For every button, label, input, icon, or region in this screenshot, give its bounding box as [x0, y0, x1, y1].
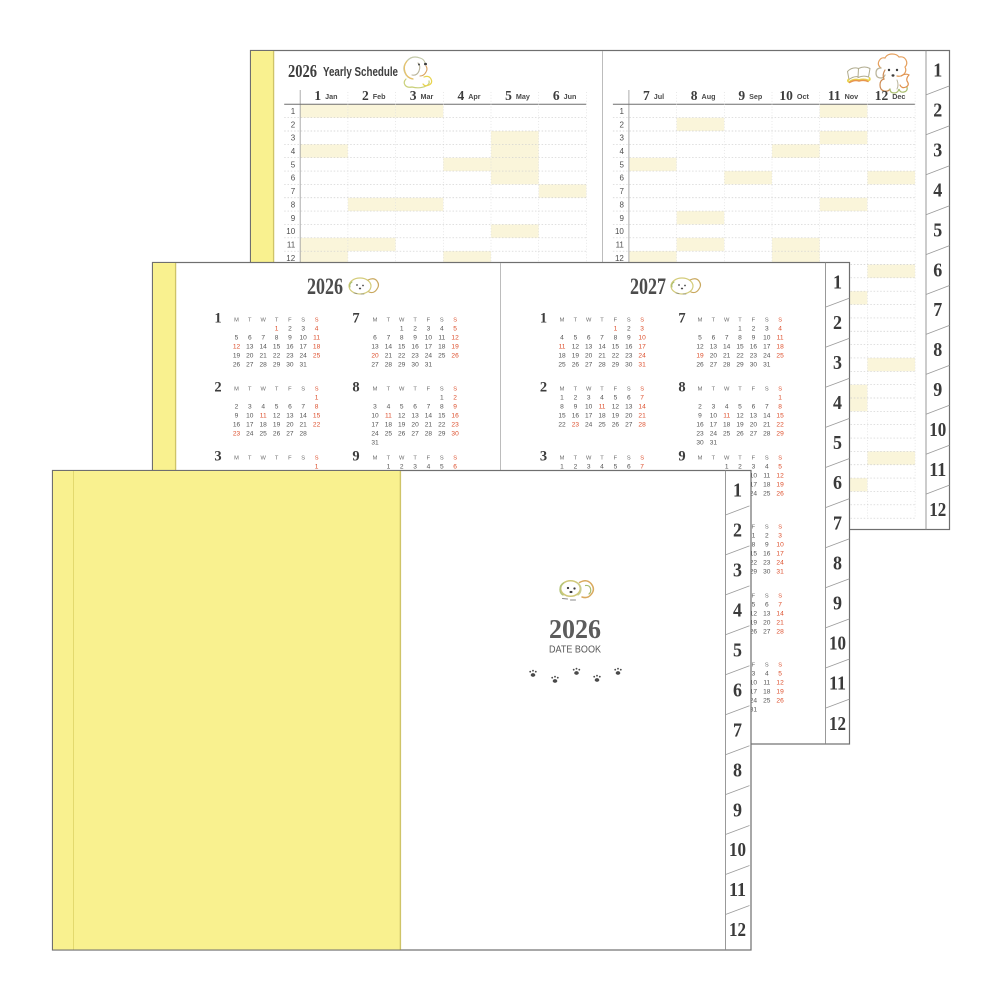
- svg-text:28: 28: [638, 422, 646, 429]
- svg-text:10: 10: [763, 335, 771, 342]
- svg-text:25: 25: [313, 353, 321, 360]
- svg-text:T: T: [413, 387, 417, 393]
- svg-text:T: T: [275, 456, 279, 462]
- svg-text:10: 10: [300, 335, 308, 342]
- svg-text:8: 8: [733, 759, 742, 781]
- svg-text:Dec: Dec: [892, 92, 905, 101]
- svg-text:29: 29: [776, 431, 784, 438]
- svg-text:23: 23: [750, 353, 758, 360]
- svg-text:22: 22: [736, 353, 744, 360]
- svg-text:26: 26: [233, 362, 241, 369]
- svg-text:3: 3: [214, 449, 221, 465]
- svg-text:S: S: [778, 594, 782, 600]
- svg-text:11: 11: [385, 413, 392, 420]
- svg-text:24: 24: [585, 422, 593, 429]
- svg-text:21: 21: [776, 620, 784, 627]
- svg-text:24: 24: [638, 353, 646, 360]
- svg-text:S: S: [315, 387, 319, 393]
- svg-text:17: 17: [246, 422, 254, 429]
- svg-text:9: 9: [752, 335, 756, 342]
- svg-text:30: 30: [451, 431, 459, 438]
- svg-text:2: 2: [933, 100, 942, 122]
- svg-text:6: 6: [553, 88, 560, 103]
- svg-text:2: 2: [235, 404, 239, 411]
- svg-text:8: 8: [291, 200, 296, 209]
- svg-text:11: 11: [828, 88, 841, 103]
- svg-text:25: 25: [598, 422, 606, 429]
- svg-text:11: 11: [559, 344, 566, 351]
- svg-text:12: 12: [398, 413, 406, 420]
- svg-text:9: 9: [574, 404, 578, 411]
- svg-text:10: 10: [779, 88, 793, 103]
- svg-text:17: 17: [638, 344, 646, 351]
- svg-text:27: 27: [286, 431, 294, 438]
- svg-text:S: S: [315, 318, 319, 324]
- svg-text:M: M: [234, 387, 239, 393]
- svg-text:8: 8: [352, 380, 359, 396]
- svg-text:2: 2: [574, 464, 578, 471]
- svg-text:3: 3: [291, 134, 296, 143]
- svg-text:8: 8: [738, 335, 742, 342]
- svg-text:F: F: [427, 387, 431, 393]
- svg-text:1: 1: [738, 326, 742, 333]
- svg-text:21: 21: [763, 422, 771, 429]
- svg-text:19: 19: [696, 353, 704, 360]
- svg-text:2: 2: [627, 326, 631, 333]
- svg-text:Jun: Jun: [564, 92, 577, 101]
- svg-text:S: S: [440, 456, 444, 462]
- svg-text:May: May: [516, 92, 530, 101]
- svg-text:9: 9: [453, 404, 457, 411]
- svg-text:Mar: Mar: [421, 92, 434, 101]
- svg-text:F: F: [614, 456, 618, 462]
- svg-text:8: 8: [440, 404, 444, 411]
- svg-text:2: 2: [288, 326, 292, 333]
- svg-text:12: 12: [729, 919, 746, 941]
- svg-text:F: F: [752, 318, 756, 324]
- svg-text:7: 7: [725, 335, 729, 342]
- svg-text:14: 14: [260, 344, 268, 351]
- svg-text:M: M: [373, 387, 378, 393]
- svg-text:3: 3: [733, 560, 742, 582]
- svg-text:1: 1: [275, 326, 279, 333]
- svg-text:25: 25: [763, 491, 771, 498]
- svg-text:F: F: [752, 594, 756, 600]
- svg-text:28: 28: [425, 431, 433, 438]
- svg-text:M: M: [234, 318, 239, 324]
- svg-text:S: S: [301, 387, 305, 393]
- svg-text:7: 7: [352, 311, 359, 327]
- svg-text:22: 22: [398, 353, 406, 360]
- svg-text:30: 30: [696, 440, 704, 447]
- svg-text:8: 8: [619, 200, 624, 209]
- svg-text:13: 13: [585, 344, 593, 351]
- svg-text:10: 10: [929, 419, 946, 441]
- svg-text:6: 6: [833, 472, 842, 494]
- svg-text:8: 8: [691, 88, 698, 103]
- svg-text:S: S: [453, 456, 457, 462]
- svg-text:8: 8: [933, 339, 942, 361]
- svg-text:6: 6: [712, 335, 716, 342]
- svg-text:F: F: [614, 318, 618, 324]
- svg-text:13: 13: [371, 344, 379, 351]
- svg-text:2: 2: [738, 464, 742, 471]
- svg-text:S: S: [301, 318, 305, 324]
- svg-text:Oct: Oct: [797, 92, 810, 101]
- svg-text:19: 19: [273, 422, 281, 429]
- svg-text:7: 7: [678, 311, 685, 327]
- svg-text:S: S: [640, 318, 644, 324]
- svg-text:3: 3: [933, 140, 942, 162]
- svg-text:F: F: [614, 387, 618, 393]
- svg-text:3: 3: [301, 326, 305, 333]
- svg-text:20: 20: [585, 353, 593, 360]
- svg-text:27: 27: [411, 431, 419, 438]
- svg-text:2: 2: [619, 120, 624, 129]
- svg-text:13: 13: [246, 344, 254, 351]
- svg-text:4: 4: [291, 147, 296, 156]
- svg-text:9: 9: [698, 413, 702, 420]
- svg-text:31: 31: [300, 362, 308, 369]
- svg-text:23: 23: [411, 353, 419, 360]
- svg-text:M: M: [560, 456, 565, 462]
- svg-text:25: 25: [260, 431, 268, 438]
- svg-text:7: 7: [301, 404, 305, 411]
- svg-text:14: 14: [300, 413, 308, 420]
- svg-text:15: 15: [558, 413, 566, 420]
- svg-text:16: 16: [233, 422, 241, 429]
- svg-text:T: T: [600, 387, 604, 393]
- svg-text:2: 2: [291, 120, 296, 129]
- svg-text:24: 24: [246, 431, 254, 438]
- svg-text:W: W: [724, 318, 730, 324]
- svg-text:1: 1: [540, 311, 547, 327]
- svg-text:2: 2: [540, 380, 547, 396]
- svg-text:S: S: [627, 318, 631, 324]
- svg-text:23: 23: [286, 353, 294, 360]
- svg-text:20: 20: [411, 422, 419, 429]
- svg-text:F: F: [288, 387, 292, 393]
- svg-text:13: 13: [625, 404, 633, 411]
- svg-text:31: 31: [776, 569, 784, 576]
- svg-text:5: 5: [453, 326, 457, 333]
- svg-text:T: T: [413, 456, 417, 462]
- svg-text:F: F: [752, 456, 756, 462]
- svg-text:23: 23: [696, 431, 704, 438]
- svg-text:14: 14: [385, 344, 393, 351]
- svg-text:4: 4: [933, 180, 942, 202]
- svg-text:23: 23: [451, 422, 459, 429]
- svg-text:F: F: [288, 456, 292, 462]
- svg-text:5: 5: [235, 335, 239, 342]
- svg-text:21: 21: [723, 353, 731, 360]
- svg-text:7: 7: [261, 335, 265, 342]
- svg-text:8: 8: [275, 335, 279, 342]
- svg-text:5: 5: [400, 404, 404, 411]
- svg-text:5: 5: [614, 464, 618, 471]
- svg-text:31: 31: [638, 362, 646, 369]
- svg-text:M: M: [373, 318, 378, 324]
- svg-text:11: 11: [438, 335, 445, 342]
- svg-text:S: S: [778, 456, 782, 462]
- svg-text:7: 7: [291, 187, 296, 196]
- svg-text:9: 9: [678, 449, 685, 465]
- svg-text:25: 25: [385, 431, 393, 438]
- svg-text:21: 21: [598, 353, 606, 360]
- svg-text:4: 4: [778, 326, 782, 333]
- svg-text:13: 13: [750, 413, 758, 420]
- svg-text:16: 16: [286, 344, 294, 351]
- svg-text:T: T: [712, 456, 716, 462]
- svg-text:1: 1: [560, 464, 564, 471]
- svg-text:17: 17: [425, 344, 433, 351]
- svg-text:11: 11: [763, 473, 770, 480]
- svg-text:T: T: [275, 387, 279, 393]
- svg-text:12: 12: [615, 254, 624, 263]
- svg-text:4: 4: [315, 326, 319, 333]
- svg-text:1: 1: [315, 395, 319, 402]
- svg-text:4: 4: [440, 326, 444, 333]
- svg-text:12: 12: [612, 404, 620, 411]
- svg-text:4: 4: [457, 88, 464, 103]
- svg-text:31: 31: [371, 440, 379, 447]
- svg-text:13: 13: [411, 413, 419, 420]
- svg-text:26: 26: [572, 362, 580, 369]
- svg-text:5: 5: [933, 219, 942, 241]
- svg-text:6: 6: [453, 464, 457, 471]
- svg-text:15: 15: [273, 344, 281, 351]
- svg-text:17: 17: [776, 551, 784, 558]
- svg-text:4: 4: [261, 404, 265, 411]
- svg-text:Yearly Schedule: Yearly Schedule: [323, 65, 398, 79]
- svg-text:F: F: [752, 387, 756, 393]
- svg-text:21: 21: [260, 353, 268, 360]
- svg-text:8: 8: [560, 404, 564, 411]
- svg-text:7: 7: [933, 299, 942, 321]
- svg-text:10: 10: [286, 227, 295, 236]
- svg-text:31: 31: [425, 362, 433, 369]
- svg-text:10: 10: [371, 413, 379, 420]
- svg-text:7: 7: [600, 335, 604, 342]
- svg-text:11: 11: [777, 335, 784, 342]
- svg-text:12: 12: [776, 680, 784, 687]
- svg-text:18: 18: [438, 344, 446, 351]
- svg-text:6: 6: [933, 259, 942, 281]
- svg-text:20: 20: [625, 413, 633, 420]
- svg-text:3: 3: [752, 671, 756, 678]
- svg-text:22: 22: [273, 353, 281, 360]
- svg-text:T: T: [387, 456, 391, 462]
- svg-text:29: 29: [612, 362, 620, 369]
- svg-text:W: W: [261, 387, 267, 393]
- svg-text:S: S: [640, 387, 644, 393]
- svg-text:F: F: [288, 318, 292, 324]
- svg-text:7: 7: [387, 335, 391, 342]
- svg-text:11: 11: [260, 413, 267, 420]
- svg-text:1: 1: [387, 464, 391, 471]
- svg-text:T: T: [574, 387, 578, 393]
- svg-text:5: 5: [619, 160, 624, 169]
- svg-text:18: 18: [598, 413, 606, 420]
- svg-text:28: 28: [763, 431, 771, 438]
- svg-text:6: 6: [291, 174, 296, 183]
- svg-text:29: 29: [273, 362, 281, 369]
- svg-text:25: 25: [776, 353, 784, 360]
- svg-text:T: T: [248, 387, 252, 393]
- svg-text:1: 1: [440, 395, 444, 402]
- svg-text:S: S: [778, 318, 782, 324]
- svg-text:5: 5: [733, 640, 742, 662]
- svg-text:12: 12: [696, 344, 704, 351]
- svg-text:28: 28: [776, 629, 784, 636]
- svg-text:13: 13: [286, 413, 294, 420]
- svg-text:6: 6: [627, 464, 631, 471]
- svg-text:2026: 2026: [288, 61, 317, 81]
- svg-text:11: 11: [599, 404, 606, 411]
- svg-text:S: S: [778, 525, 782, 531]
- svg-text:22: 22: [776, 422, 784, 429]
- svg-text:19: 19: [233, 353, 241, 360]
- svg-text:DATE BOOK: DATE BOOK: [549, 645, 601, 656]
- svg-text:6: 6: [288, 404, 292, 411]
- svg-text:9: 9: [288, 335, 292, 342]
- svg-text:M: M: [234, 456, 239, 462]
- svg-text:T: T: [712, 387, 716, 393]
- svg-text:11: 11: [287, 241, 296, 250]
- svg-text:T: T: [738, 387, 742, 393]
- svg-text:12: 12: [829, 713, 846, 735]
- svg-text:9: 9: [619, 214, 624, 223]
- svg-text:25: 25: [763, 698, 771, 705]
- svg-text:2026: 2026: [307, 274, 343, 299]
- svg-text:M: M: [698, 318, 703, 324]
- svg-text:16: 16: [750, 344, 758, 351]
- svg-text:28: 28: [723, 362, 731, 369]
- svg-text:4: 4: [600, 464, 604, 471]
- svg-text:29: 29: [736, 362, 744, 369]
- svg-text:7: 7: [833, 512, 842, 534]
- svg-text:19: 19: [451, 344, 459, 351]
- svg-text:12: 12: [736, 413, 744, 420]
- svg-text:28: 28: [598, 362, 606, 369]
- svg-text:26: 26: [776, 698, 784, 705]
- svg-text:12: 12: [776, 473, 784, 480]
- svg-text:6: 6: [413, 404, 417, 411]
- svg-text:T: T: [738, 456, 742, 462]
- svg-text:31: 31: [710, 440, 718, 447]
- svg-text:15: 15: [313, 413, 321, 420]
- svg-text:2027: 2027: [630, 274, 666, 299]
- svg-text:26: 26: [398, 431, 406, 438]
- svg-text:20: 20: [371, 353, 379, 360]
- svg-text:4: 4: [833, 392, 842, 414]
- svg-text:18: 18: [763, 689, 771, 696]
- svg-text:16: 16: [763, 551, 771, 558]
- svg-text:9: 9: [413, 335, 417, 342]
- svg-text:S: S: [778, 387, 782, 393]
- svg-text:2: 2: [413, 326, 417, 333]
- svg-text:13: 13: [710, 344, 718, 351]
- svg-text:3: 3: [587, 464, 591, 471]
- svg-text:23: 23: [572, 422, 580, 429]
- svg-text:14: 14: [763, 413, 771, 420]
- svg-text:9: 9: [933, 379, 942, 401]
- svg-text:S: S: [453, 318, 457, 324]
- svg-text:24: 24: [300, 353, 308, 360]
- svg-text:17: 17: [371, 422, 379, 429]
- svg-text:26: 26: [273, 431, 281, 438]
- svg-text:Jan: Jan: [325, 92, 337, 101]
- svg-text:4: 4: [733, 600, 742, 622]
- svg-text:T: T: [600, 318, 604, 324]
- svg-text:25: 25: [558, 362, 566, 369]
- svg-text:11: 11: [929, 459, 946, 481]
- svg-text:S: S: [778, 663, 782, 669]
- svg-text:4: 4: [427, 464, 431, 471]
- svg-text:W: W: [724, 387, 730, 393]
- svg-text:T: T: [413, 318, 417, 324]
- svg-text:15: 15: [736, 344, 744, 351]
- svg-text:29: 29: [438, 431, 446, 438]
- svg-text:10: 10: [776, 542, 784, 549]
- svg-text:1: 1: [291, 107, 296, 116]
- svg-text:18: 18: [723, 422, 731, 429]
- svg-text:15: 15: [776, 413, 784, 420]
- svg-text:5: 5: [440, 464, 444, 471]
- svg-text:17: 17: [585, 413, 593, 420]
- svg-text:F: F: [752, 525, 756, 531]
- svg-text:W: W: [586, 318, 592, 324]
- svg-text:Aug: Aug: [702, 92, 716, 101]
- svg-text:5: 5: [291, 160, 296, 169]
- svg-text:2026: 2026: [549, 614, 601, 644]
- svg-text:18: 18: [776, 344, 784, 351]
- svg-text:6: 6: [619, 174, 624, 183]
- svg-text:21: 21: [385, 353, 393, 360]
- svg-text:Nov: Nov: [845, 92, 859, 101]
- svg-text:F: F: [752, 663, 756, 669]
- svg-text:8: 8: [315, 404, 319, 411]
- svg-text:M: M: [560, 387, 565, 393]
- svg-text:7: 7: [643, 88, 650, 103]
- svg-text:29: 29: [398, 362, 406, 369]
- svg-text:S: S: [765, 525, 769, 531]
- svg-text:10: 10: [246, 413, 254, 420]
- svg-text:T: T: [600, 456, 604, 462]
- svg-text:7: 7: [778, 602, 782, 609]
- svg-text:17: 17: [300, 344, 308, 351]
- svg-text:5: 5: [778, 464, 782, 471]
- svg-text:S: S: [301, 456, 305, 462]
- svg-text:S: S: [453, 387, 457, 393]
- svg-text:16: 16: [625, 344, 633, 351]
- svg-text:6: 6: [752, 404, 756, 411]
- svg-text:4: 4: [765, 464, 769, 471]
- svg-text:19: 19: [776, 482, 784, 489]
- svg-text:18: 18: [313, 344, 321, 351]
- svg-text:1: 1: [933, 60, 942, 82]
- svg-text:16: 16: [411, 344, 419, 351]
- svg-text:30: 30: [625, 362, 633, 369]
- svg-text:1: 1: [833, 272, 842, 294]
- svg-text:17: 17: [763, 344, 771, 351]
- svg-text:1: 1: [214, 311, 221, 327]
- svg-text:S: S: [640, 456, 644, 462]
- svg-text:24: 24: [710, 431, 718, 438]
- svg-text:16: 16: [696, 422, 704, 429]
- svg-text:W: W: [586, 387, 592, 393]
- svg-text:11: 11: [729, 879, 746, 901]
